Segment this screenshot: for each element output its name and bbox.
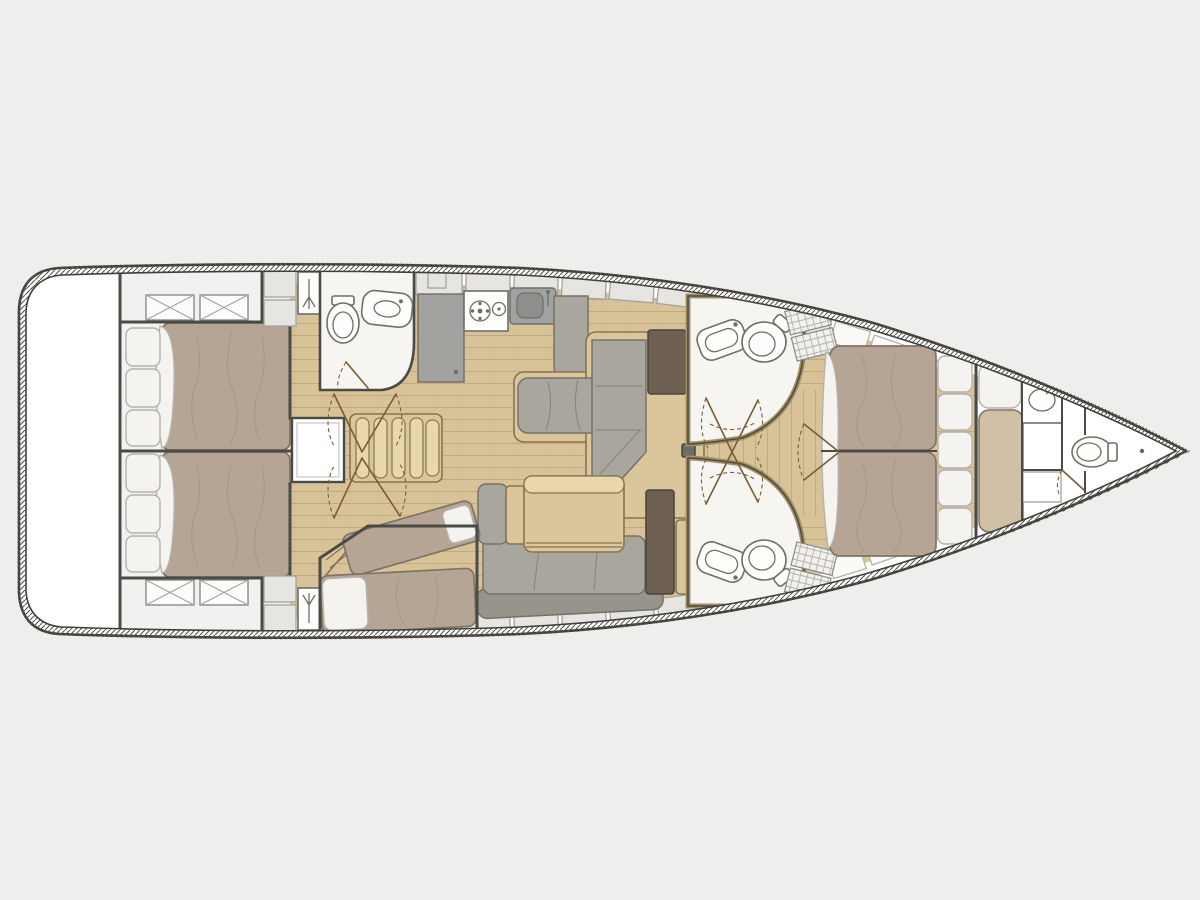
forepeak-cabinet: [1023, 472, 1061, 502]
toilet-fixture: [327, 296, 359, 343]
owner-bed-port-half: [830, 346, 936, 450]
deck-shower-icon: [298, 588, 320, 630]
locker: [428, 272, 446, 288]
pillow: [126, 328, 160, 366]
locker: [264, 605, 296, 631]
headboard-cushion: [938, 394, 972, 430]
floor-plan-canvas: [0, 0, 1200, 900]
aft-cabin-starboard-bed: [126, 452, 290, 577]
lower-berth: [320, 568, 477, 634]
salon-cabinet: [646, 490, 674, 594]
locker: [264, 300, 296, 326]
aft-cabins: [120, 268, 320, 634]
owner-bed-starboard-half: [830, 452, 936, 556]
deck-hatch: [146, 580, 194, 605]
interior: [19, 266, 1188, 636]
companionway: [292, 414, 442, 482]
forepeak-berth: [979, 410, 1023, 532]
owner-cabin: [822, 346, 976, 556]
locker: [264, 576, 296, 602]
headboard-cushion: [938, 470, 972, 506]
pillow: [322, 577, 369, 631]
galley-sink-icon: [510, 288, 556, 324]
stair-tread: [410, 418, 423, 478]
pillow: [126, 369, 160, 407]
engine-box: [292, 418, 344, 482]
pillow: [126, 536, 160, 572]
salon: [476, 476, 696, 619]
yacht-floor-plan: [0, 0, 1200, 900]
locker: [264, 271, 296, 297]
galley-counter-return: [554, 296, 588, 380]
stair-tread: [356, 418, 369, 478]
sofa-armrest: [506, 486, 526, 544]
pillow: [126, 454, 160, 492]
stove-icon: [464, 291, 508, 331]
deck-hatch: [200, 580, 248, 605]
headboard-cushion: [938, 508, 972, 544]
deck-hatch: [200, 295, 248, 320]
headboard-cushions: [938, 356, 972, 544]
aft-head: [320, 269, 414, 390]
aft-cabin-port-bed: [126, 323, 290, 450]
bow-fitting: [1140, 449, 1144, 453]
pillow: [126, 495, 160, 533]
stair-tread: [392, 418, 405, 478]
headboard-cushion: [938, 432, 972, 468]
washbasin-fixture: [360, 289, 413, 328]
settee-cushion: [518, 378, 604, 433]
refrigerator-icon: [418, 294, 464, 382]
forepeak: [978, 320, 1188, 582]
table-leaf: [524, 476, 624, 493]
sofa-return: [478, 484, 508, 544]
deck-hatch: [146, 295, 194, 320]
saloon-table: [524, 476, 624, 552]
stair-tread: [426, 420, 439, 476]
chart-table: [648, 330, 686, 394]
transom-platform: [19, 268, 120, 634]
pillow: [126, 410, 160, 446]
deck-shower-icon: [298, 272, 320, 314]
